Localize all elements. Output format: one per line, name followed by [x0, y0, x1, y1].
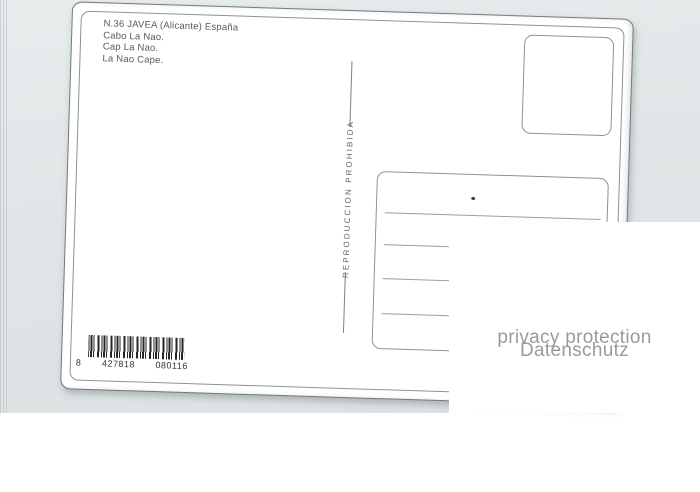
barcode-group1: 427818	[102, 358, 135, 369]
scan-edge-streaks	[0, 0, 9, 413]
barcode-bars	[88, 335, 185, 360]
barcode-lead-digit: 8	[76, 358, 82, 368]
stamp-box	[521, 34, 614, 136]
address-line	[385, 212, 601, 220]
barcode-group2: 080116	[155, 360, 188, 371]
caption-block: N.36 JAVEA (Alicante) España Cabo La Nao…	[102, 18, 238, 68]
scanned-postcard-viewer: N.36 JAVEA (Alicante) España Cabo La Nao…	[0, 0, 700, 492]
privacy-line-de: Datenschutz	[449, 345, 700, 358]
privacy-protection-text: privacy protection Datenschutz	[449, 332, 700, 357]
ean-barcode: 8 427818 080116	[76, 335, 189, 375]
privacy-protection-overlay: privacy protection Datenschutz	[449, 222, 700, 413]
barcode-digits: 8 427818 080116	[76, 358, 188, 372]
scan-speck	[471, 197, 475, 200]
